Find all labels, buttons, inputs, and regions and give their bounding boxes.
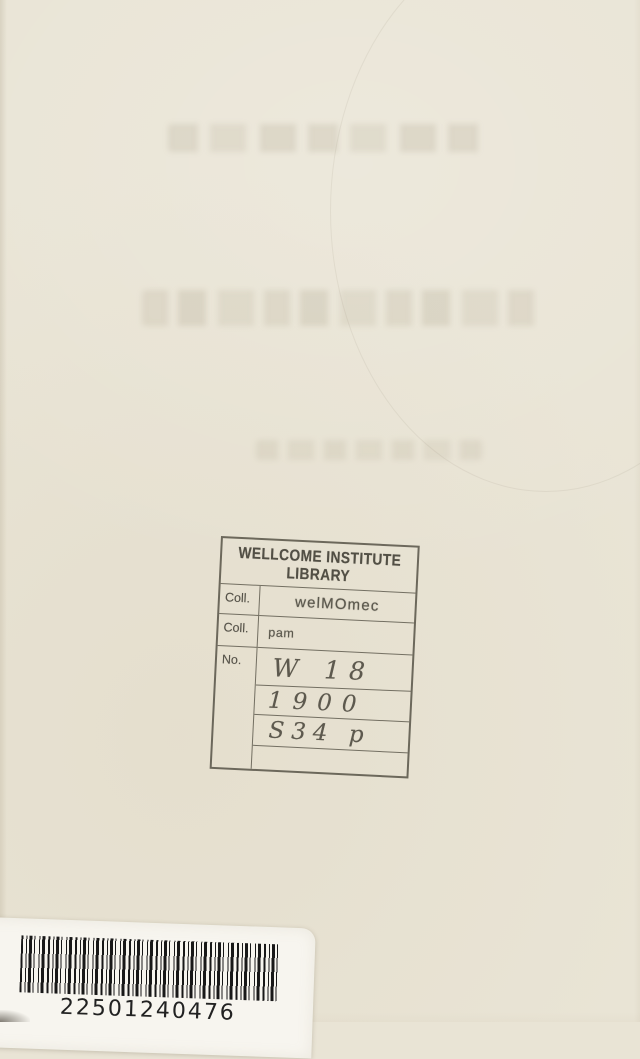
stamp-table: Coll. welMOmec Coll. pam No. W 18 1900 S… [212,584,416,776]
scanned-page: { "page": { "paper_color": "#e9e4d5" }, … [0,0,640,1022]
library-accession-stamp: WELLCOME INSTITUTE LIBRARY Coll. welMOme… [210,536,420,778]
page-corner-shadow [0,1010,30,1022]
stamp-header-line2: LIBRARY [286,565,350,586]
barcode-sticker: 22501240476 [0,917,316,1059]
ghost-showthrough-text-1 [168,124,482,152]
ghost-showthrough-text-3 [256,440,482,460]
ghost-showthrough-text-2 [142,290,544,326]
stamp-row-label-coll-1: Coll. [219,584,260,616]
stamp-row-label-no: No. [212,646,258,769]
stamp-row-label-coll-2: Coll. [218,614,260,648]
barcode-bars [19,935,279,1001]
